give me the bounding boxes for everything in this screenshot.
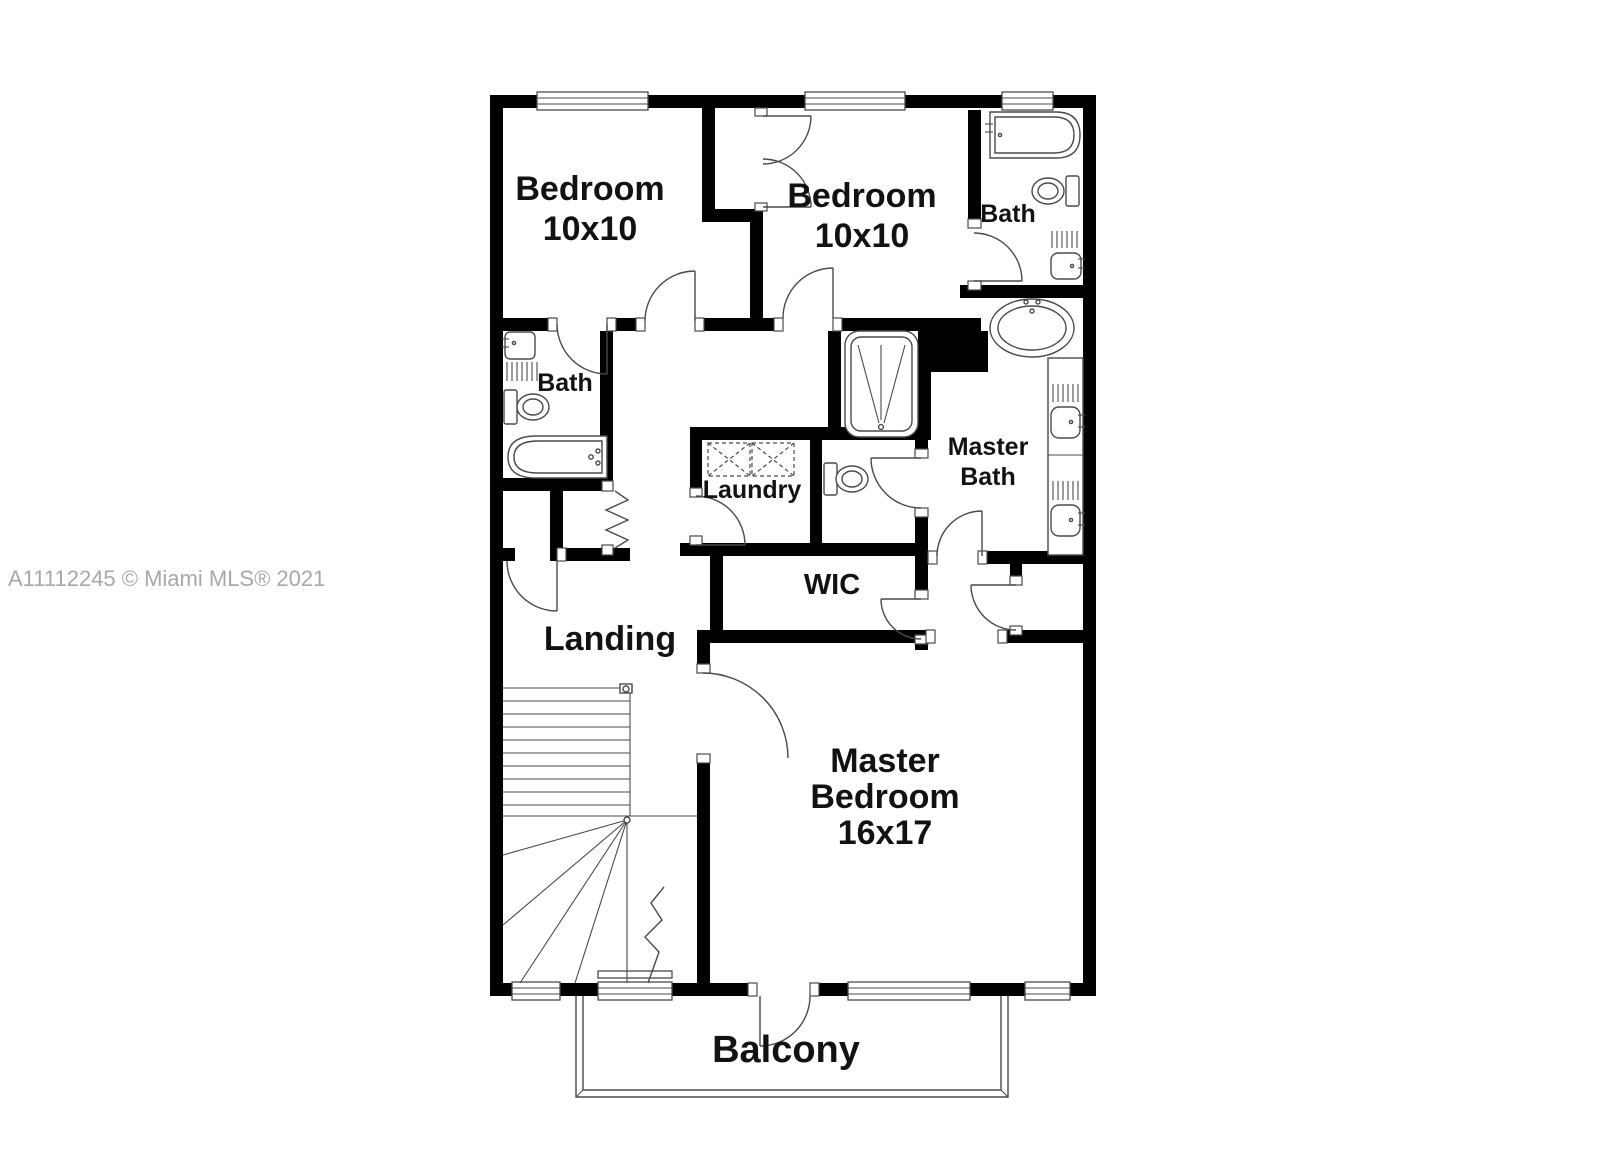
room-labels: Bedroom 10x10 Bedroom 10x10 Bath Bath La… [515, 170, 1035, 1071]
floor-plan-page: Bedroom 10x10 Bedroom 10x10 Bath Bath La… [0, 0, 1600, 1162]
doors [507, 116, 1022, 1046]
room-label-bedroom-2: Bedroom [787, 177, 936, 215]
vanity-double-sink-icon [1048, 358, 1085, 555]
watermark-text: A11112245 © Miami MLS® 2021 [8, 566, 325, 591]
door-swing-icon [971, 585, 1016, 630]
toilet-icon [1032, 176, 1079, 206]
room-label-master-bath-2: Bath [960, 463, 1016, 491]
room-label-master-bedroom-2: Bedroom [810, 778, 959, 816]
room-label-bedroom-2-size: 10x10 [815, 217, 910, 255]
window-icon [537, 92, 648, 110]
shower-icon [845, 331, 918, 437]
room-label-master-bedroom-size: 16x17 [838, 814, 933, 852]
bathtub-icon [508, 436, 607, 478]
door-swing-icon [703, 673, 788, 758]
room-label-master-bath-1: Master [948, 433, 1029, 461]
room-label-bath-left: Bath [537, 369, 593, 397]
door-swing-icon [937, 511, 982, 556]
bathtub-icon [985, 112, 1080, 158]
room-label-landing: Landing [544, 620, 676, 658]
winder-steps [503, 817, 630, 983]
door-swing-icon [974, 233, 1022, 281]
washer-dryer-icon [708, 443, 794, 476]
room-label-master-bedroom-1: Master [830, 742, 940, 780]
sink-icon [502, 332, 537, 381]
room-label-balcony: Balcony [712, 1029, 860, 1071]
stairs [503, 684, 697, 983]
room-label-bedroom-1: Bedroom [515, 170, 664, 208]
stair-break-line [645, 887, 664, 983]
floor-plan-drawing: Bedroom 10x10 Bedroom 10x10 Bath Bath La… [0, 0, 1600, 1162]
door-swing-icon [783, 268, 833, 318]
room-label-laundry: Laundry [703, 476, 802, 504]
window-icon [512, 982, 560, 1000]
window-icon [805, 92, 905, 110]
window-icon [1002, 92, 1053, 110]
room-label-wic: WIC [804, 569, 860, 601]
accordion-door-icon [606, 491, 628, 548]
bath-top-right-fixtures [985, 112, 1085, 279]
freestanding-tub-icon [990, 299, 1074, 357]
door-swing-icon [507, 561, 557, 611]
door-swing-icon [557, 324, 607, 374]
window-icon [598, 971, 672, 1000]
door-swing-icon [871, 458, 921, 508]
sink-icon [1051, 231, 1085, 279]
door-swing-icon [645, 271, 695, 321]
room-label-bedroom-1-size: 10x10 [543, 210, 638, 248]
bath-left-fixtures [502, 332, 607, 478]
window-icon [848, 982, 970, 1000]
toilet-icon [824, 463, 868, 495]
window-icon [1025, 982, 1070, 1000]
room-label-bath-top-right: Bath [980, 200, 1036, 228]
